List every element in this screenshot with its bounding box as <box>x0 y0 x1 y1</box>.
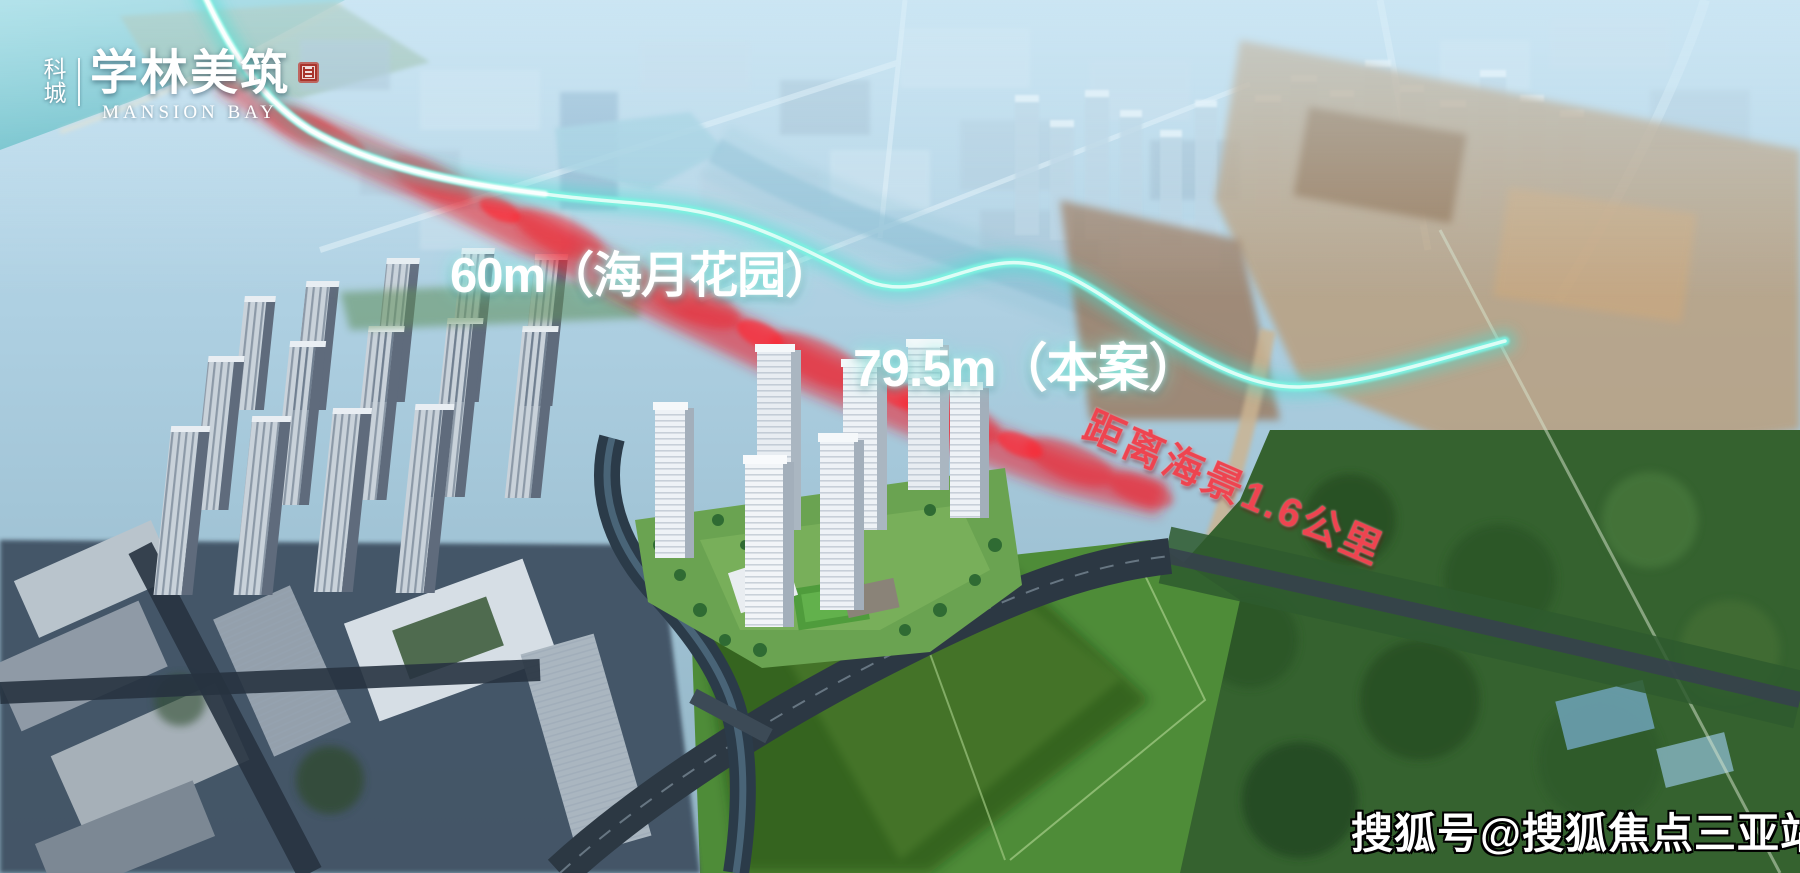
label-neighbor-width: 60m（海月花园） <box>450 236 833 307</box>
logo-main: 学林美筑 MANSION BAY <box>90 48 290 124</box>
logo: 科城 学林美筑 MANSION BAY <box>40 48 319 124</box>
logo-project-name: 学林美筑 <box>90 48 290 98</box>
seal-stamp-icon <box>298 62 319 83</box>
label-project-width: 79.5m（本案） <box>853 326 1199 401</box>
logo-brand-vertical: 科城 <box>40 58 70 106</box>
watermark: 搜狐号@搜狐焦点三亚站 <box>1351 800 1800 861</box>
logo-english-name: MANSION BAY <box>102 102 278 124</box>
logo-divider <box>78 58 80 106</box>
aerial-scene <box>0 0 1800 873</box>
aerial-photo: 科城 学林美筑 MANSION BAY 60m（海月花园） 79.5m（本案） … <box>0 0 1800 873</box>
